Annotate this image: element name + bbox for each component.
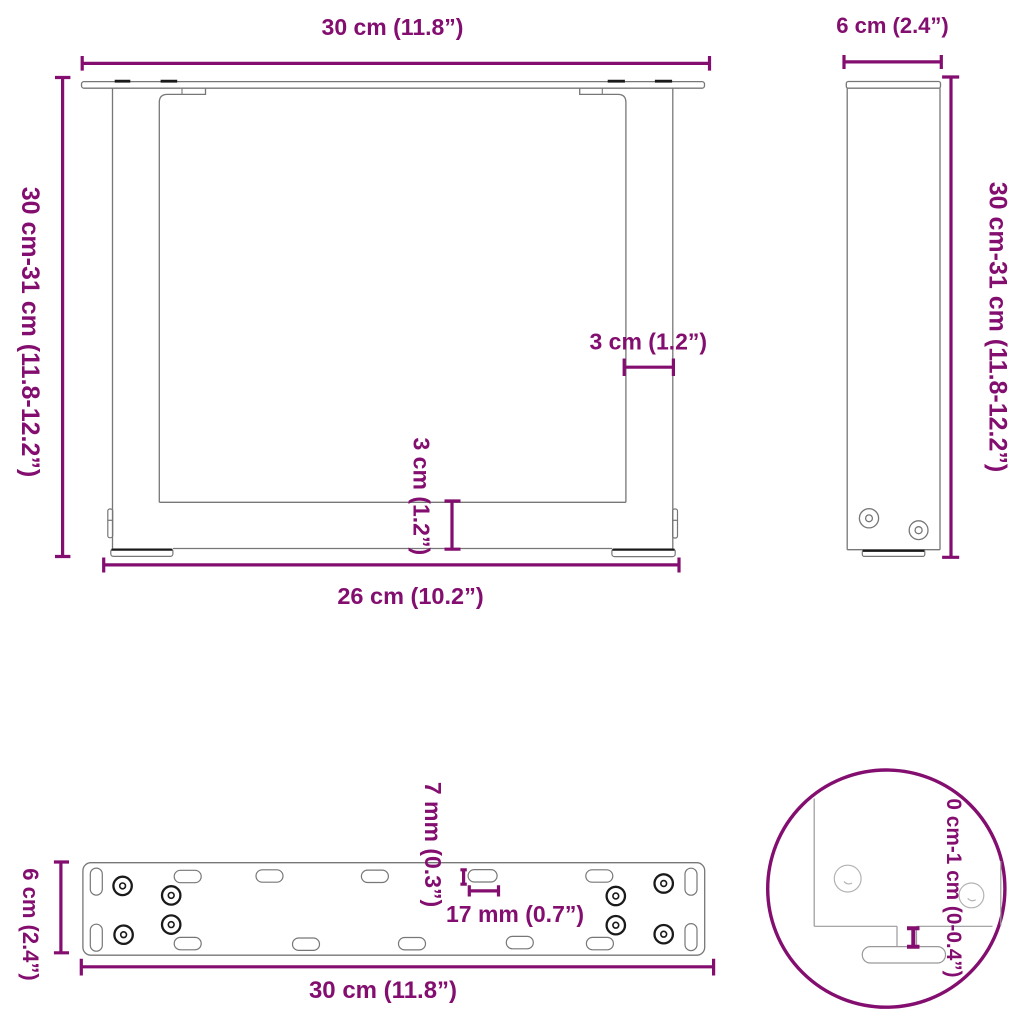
svg-text:0 cm-1 cm (0-0.4”): 0 cm-1 cm (0-0.4”) bbox=[942, 798, 965, 977]
svg-text:6 cm (2.4”): 6 cm (2.4”) bbox=[18, 868, 43, 981]
svg-text:17 mm (0.7”): 17 mm (0.7”) bbox=[446, 901, 584, 927]
svg-text:6 cm (2.4”): 6 cm (2.4”) bbox=[836, 13, 949, 38]
svg-text:7 mm (0.3”): 7 mm (0.3”) bbox=[420, 782, 446, 907]
svg-text:30 cm-31 cm (11.8-12.2”): 30 cm-31 cm (11.8-12.2”) bbox=[16, 187, 44, 477]
svg-text:3 cm (1.2”): 3 cm (1.2”) bbox=[409, 437, 435, 555]
svg-text:3 cm (1.2”): 3 cm (1.2”) bbox=[589, 329, 707, 355]
svg-text:30 cm-31 cm (11.8-12.2”): 30 cm-31 cm (11.8-12.2”) bbox=[984, 182, 1012, 472]
svg-text:30 cm (11.8”): 30 cm (11.8”) bbox=[309, 977, 457, 1004]
svg-text:26 cm (10.2”): 26 cm (10.2”) bbox=[337, 583, 483, 609]
svg-text:30 cm (11.8”): 30 cm (11.8”) bbox=[322, 14, 464, 40]
